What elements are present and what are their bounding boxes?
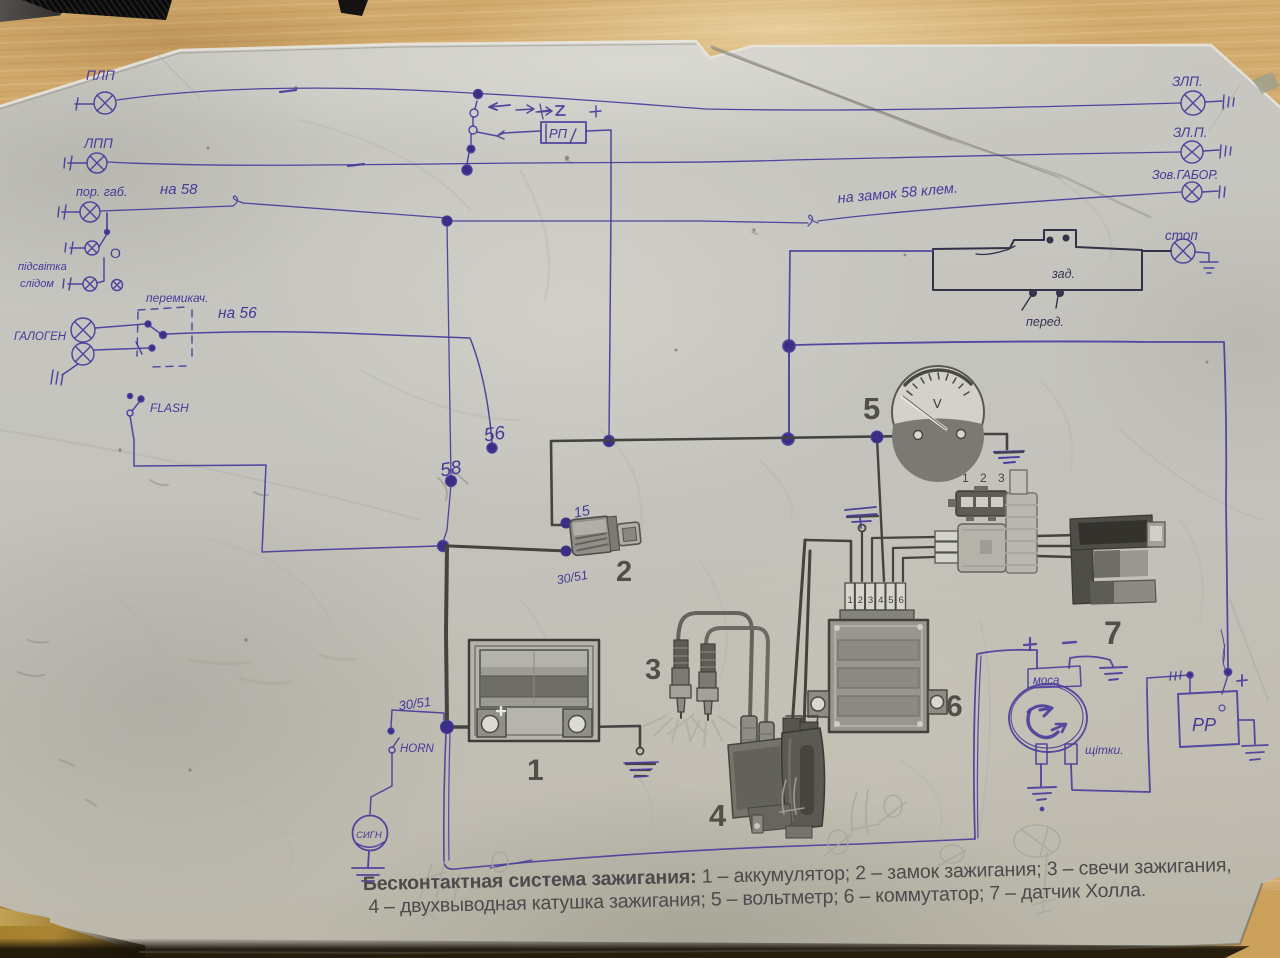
svg-text:2: 2 [858, 595, 863, 606]
svg-text:6: 6 [946, 690, 963, 723]
svg-text:V: V [933, 396, 942, 411]
svg-text:зад.: зад. [1051, 267, 1075, 281]
svg-text:5: 5 [888, 595, 893, 606]
svg-text:5: 5 [863, 391, 880, 426]
svg-text:ЗЛ.П.: ЗЛ.П. [1173, 125, 1207, 140]
svg-text:ПЛП: ПЛП [86, 68, 115, 83]
svg-text:ЛПП: ЛПП [83, 136, 113, 151]
svg-text:30/51: 30/51 [398, 694, 432, 713]
svg-text:6: 6 [899, 595, 904, 606]
svg-text:РП: РП [549, 126, 568, 141]
svg-text:FLASH: FLASH [150, 401, 189, 415]
svg-text:перемикач.: перемикач. [146, 291, 208, 305]
svg-text:пор. габ.: пор. габ. [76, 185, 127, 199]
svg-text:ЗЛП.: ЗЛП. [1172, 74, 1203, 89]
svg-text:4: 4 [878, 595, 883, 606]
svg-text:підсвітка: підсвітка [18, 261, 67, 273]
svg-text:ГАЛОГЕН: ГАЛОГЕН [14, 331, 67, 343]
svg-text:стоп: стоп [1165, 228, 1198, 243]
svg-text:слідом: слідом [20, 278, 54, 290]
svg-text:58: 58 [439, 457, 464, 481]
svg-text:1: 1 [527, 754, 544, 787]
svg-text:7: 7 [1104, 615, 1122, 651]
svg-text:1 2 3: 1 2 3 [962, 471, 1009, 485]
svg-text:30/51: 30/51 [556, 568, 589, 587]
svg-text:4: 4 [709, 798, 727, 833]
svg-text:перед.: перед. [1026, 315, 1064, 329]
svg-text:1: 1 [848, 595, 853, 606]
svg-text:на 58: на 58 [160, 181, 198, 198]
svg-text:О: О [110, 245, 121, 261]
svg-text:на 56: на 56 [218, 305, 257, 322]
svg-text:3: 3 [868, 595, 873, 606]
svg-text:HORN: HORN [400, 743, 435, 755]
svg-text:3: 3 [645, 654, 661, 686]
svg-text:на замок 58 клем.: на замок 58 клем. [837, 181, 959, 207]
svg-text:Зов.ГАБОР.: Зов.ГАБОР. [1152, 168, 1218, 182]
svg-text:РР: РР [1192, 715, 1216, 735]
svg-text:СИГН: СИГН [356, 830, 382, 841]
svg-text:56: 56 [483, 423, 507, 447]
svg-text:щітки.: щітки. [1085, 743, 1124, 757]
svg-text:2: 2 [616, 556, 632, 588]
